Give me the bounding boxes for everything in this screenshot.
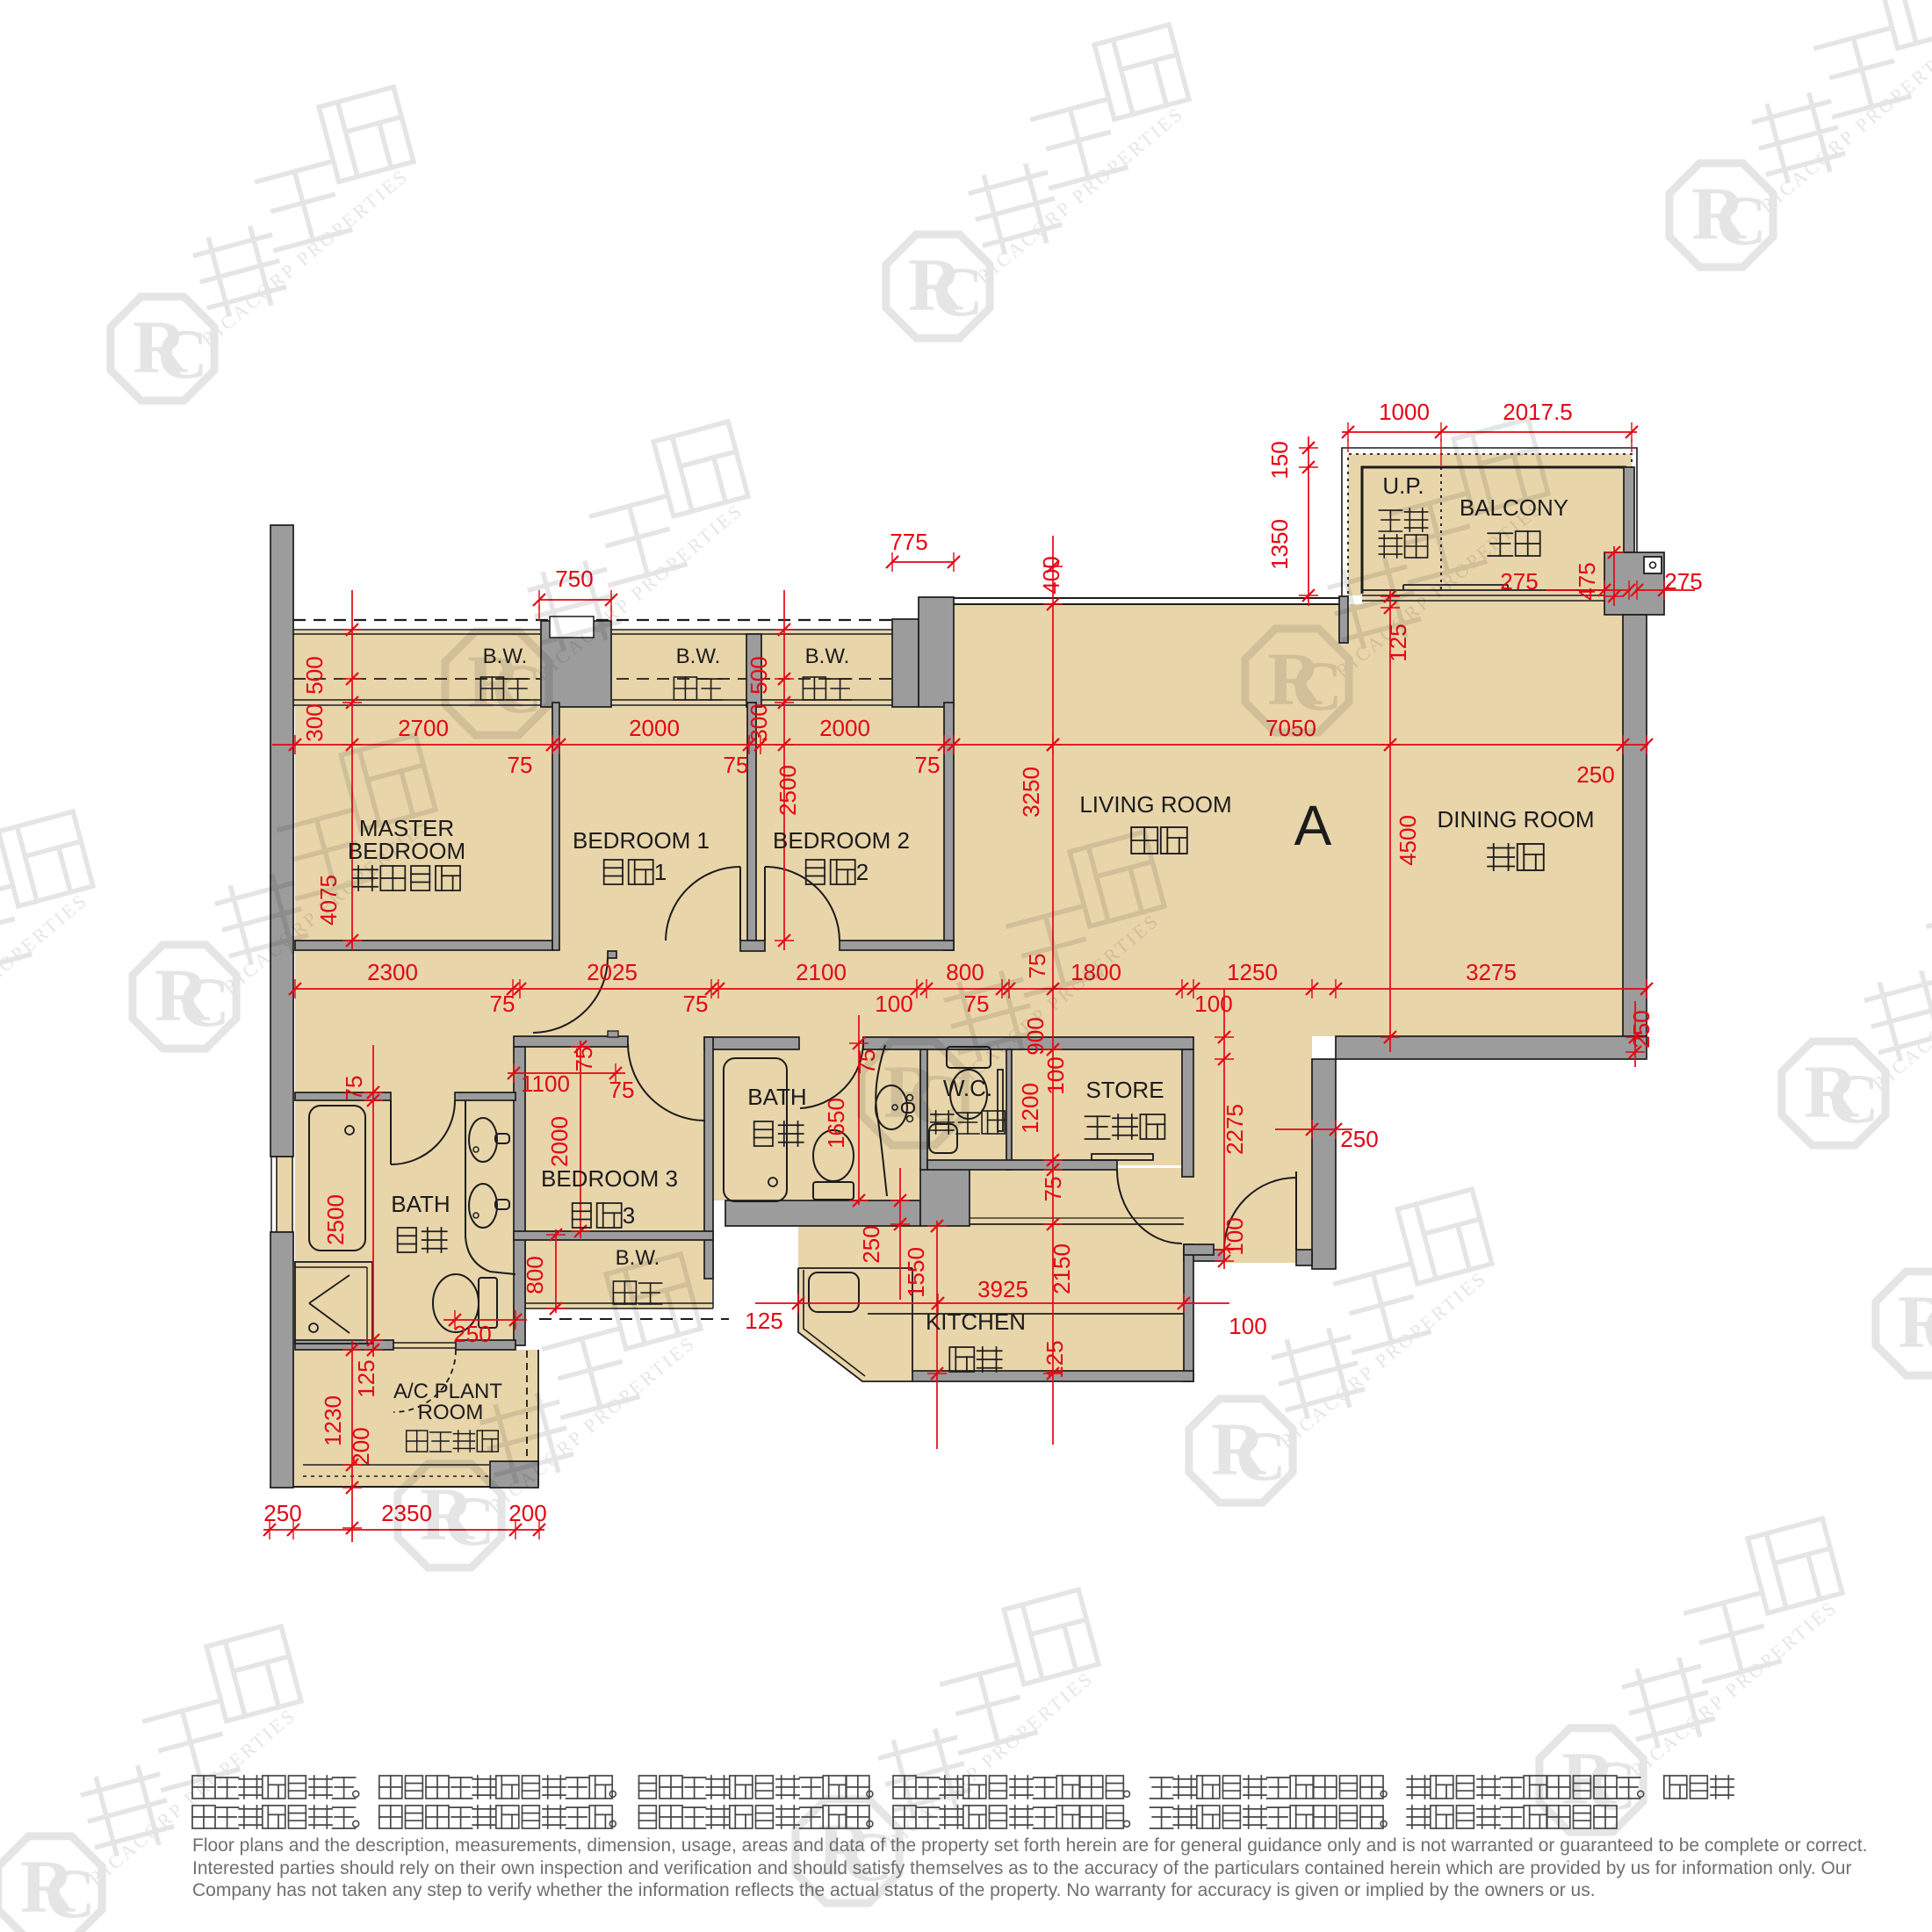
- svg-text:1200: 1200: [1017, 1083, 1043, 1134]
- svg-text:2300: 2300: [367, 959, 418, 985]
- svg-text:1100: 1100: [521, 1071, 570, 1097]
- svg-text:75: 75: [490, 991, 515, 1017]
- svg-text:100: 100: [1194, 991, 1232, 1017]
- svg-text:75: 75: [683, 991, 709, 1017]
- svg-text:800: 800: [946, 959, 984, 985]
- svg-text:2025: 2025: [587, 959, 638, 985]
- svg-text:C: C: [1922, 1291, 1932, 1368]
- svg-text:Company has not taken any step: Company has not taken any step to verify…: [192, 1880, 1596, 1900]
- svg-text:C: C: [1292, 648, 1343, 725]
- svg-text:C: C: [179, 964, 230, 1042]
- svg-text:75: 75: [508, 752, 533, 778]
- svg-text:BATH: BATH: [391, 1191, 450, 1217]
- svg-text:800: 800: [522, 1256, 548, 1294]
- svg-text:1550: 1550: [903, 1247, 929, 1298]
- svg-text:2100: 2100: [796, 959, 847, 985]
- svg-text:C: C: [933, 254, 984, 331]
- svg-text:400: 400: [1038, 556, 1064, 594]
- svg-text:250: 250: [1576, 761, 1614, 788]
- svg-text:1: 1: [654, 859, 667, 885]
- svg-text:75: 75: [724, 752, 749, 778]
- svg-text:BEDROOM 3: BEDROOM 3: [541, 1165, 678, 1192]
- svg-text:3: 3: [623, 1202, 635, 1229]
- svg-text:A: A: [1294, 794, 1332, 857]
- svg-text:75: 75: [609, 1077, 635, 1103]
- svg-text:250: 250: [1340, 1126, 1378, 1152]
- svg-text:4500: 4500: [1395, 815, 1421, 866]
- svg-text:1230: 1230: [320, 1395, 346, 1446]
- svg-text:BEDROOM 1: BEDROOM 1: [573, 827, 710, 854]
- svg-text:75: 75: [341, 1076, 367, 1101]
- svg-text:C: C: [908, 1061, 959, 1138]
- svg-text:2500: 2500: [775, 765, 801, 816]
- svg-text:1350: 1350: [1266, 519, 1293, 570]
- svg-text:2: 2: [856, 859, 869, 885]
- svg-text:250: 250: [858, 1225, 884, 1263]
- svg-text:250: 250: [1628, 1010, 1654, 1048]
- svg-text:2000: 2000: [629, 715, 680, 741]
- svg-text:1000: 1000: [1379, 399, 1430, 425]
- svg-text:B.W.: B.W.: [805, 645, 850, 668]
- svg-text:100: 100: [875, 991, 912, 1017]
- svg-text:BATH: BATH: [747, 1084, 806, 1110]
- svg-text:2500: 2500: [322, 1194, 349, 1245]
- svg-text:75: 75: [571, 1047, 597, 1072]
- svg-text:2000: 2000: [819, 715, 870, 741]
- svg-text:BEDROOM 2: BEDROOM 2: [773, 827, 910, 854]
- svg-text:U.P.: U.P.: [1382, 472, 1424, 499]
- svg-text:C: C: [45, 1856, 96, 1932]
- svg-text:B.W.: B.W.: [676, 645, 721, 668]
- svg-text:C: C: [444, 1483, 495, 1561]
- svg-text:275: 275: [1664, 568, 1702, 595]
- svg-text:3925: 3925: [977, 1276, 1028, 1302]
- svg-text:300: 300: [301, 703, 328, 741]
- svg-text:C: C: [1716, 183, 1767, 260]
- svg-text:2275: 2275: [1222, 1104, 1248, 1155]
- svg-text:ROOM: ROOM: [418, 1401, 484, 1424]
- svg-text:C: C: [157, 316, 208, 393]
- svg-text:200: 200: [508, 1500, 546, 1526]
- svg-text:250: 250: [453, 1321, 491, 1347]
- svg-text:Floor plans and the descriptio: Floor plans and the description, measure…: [192, 1835, 1867, 1856]
- svg-text:75: 75: [1024, 954, 1050, 979]
- svg-text:1650: 1650: [823, 1098, 849, 1149]
- svg-text:125: 125: [353, 1359, 379, 1397]
- svg-text:STORE: STORE: [1085, 1077, 1164, 1103]
- svg-text:275: 275: [1500, 568, 1538, 595]
- svg-text:KITCHEN: KITCHEN: [926, 1308, 1026, 1335]
- svg-text:C: C: [1828, 1061, 1879, 1138]
- svg-text:3250: 3250: [1018, 767, 1044, 818]
- svg-text:C: C: [1236, 1418, 1287, 1496]
- svg-text:250: 250: [263, 1500, 301, 1526]
- svg-text:2000: 2000: [546, 1116, 573, 1167]
- svg-text:2150: 2150: [1049, 1244, 1075, 1294]
- svg-text:Interested parties should rely: Interested parties should rely on their …: [192, 1858, 1851, 1878]
- svg-text:C: C: [492, 651, 543, 728]
- svg-text:A/C PLANT: A/C PLANT: [393, 1380, 502, 1403]
- svg-text:300: 300: [746, 703, 772, 741]
- svg-text:100: 100: [1042, 1056, 1069, 1094]
- svg-text:3275: 3275: [1466, 959, 1517, 985]
- svg-text:LIVING ROOM: LIVING ROOM: [1079, 791, 1231, 818]
- svg-text:125: 125: [745, 1308, 782, 1334]
- svg-text:500: 500: [746, 656, 772, 694]
- svg-text:150: 150: [1266, 441, 1293, 479]
- svg-text:125: 125: [1042, 1340, 1068, 1378]
- svg-text:475: 475: [1574, 562, 1600, 600]
- svg-text:100: 100: [1222, 1217, 1248, 1255]
- svg-text:200: 200: [348, 1427, 374, 1465]
- svg-text:500: 500: [301, 656, 328, 694]
- svg-text:75: 75: [915, 752, 941, 778]
- svg-text:DINING ROOM: DINING ROOM: [1437, 806, 1594, 833]
- svg-text:1250: 1250: [1227, 959, 1278, 985]
- svg-text:775: 775: [890, 529, 927, 555]
- svg-text:75: 75: [1040, 1177, 1066, 1202]
- svg-text:100: 100: [1229, 1313, 1266, 1339]
